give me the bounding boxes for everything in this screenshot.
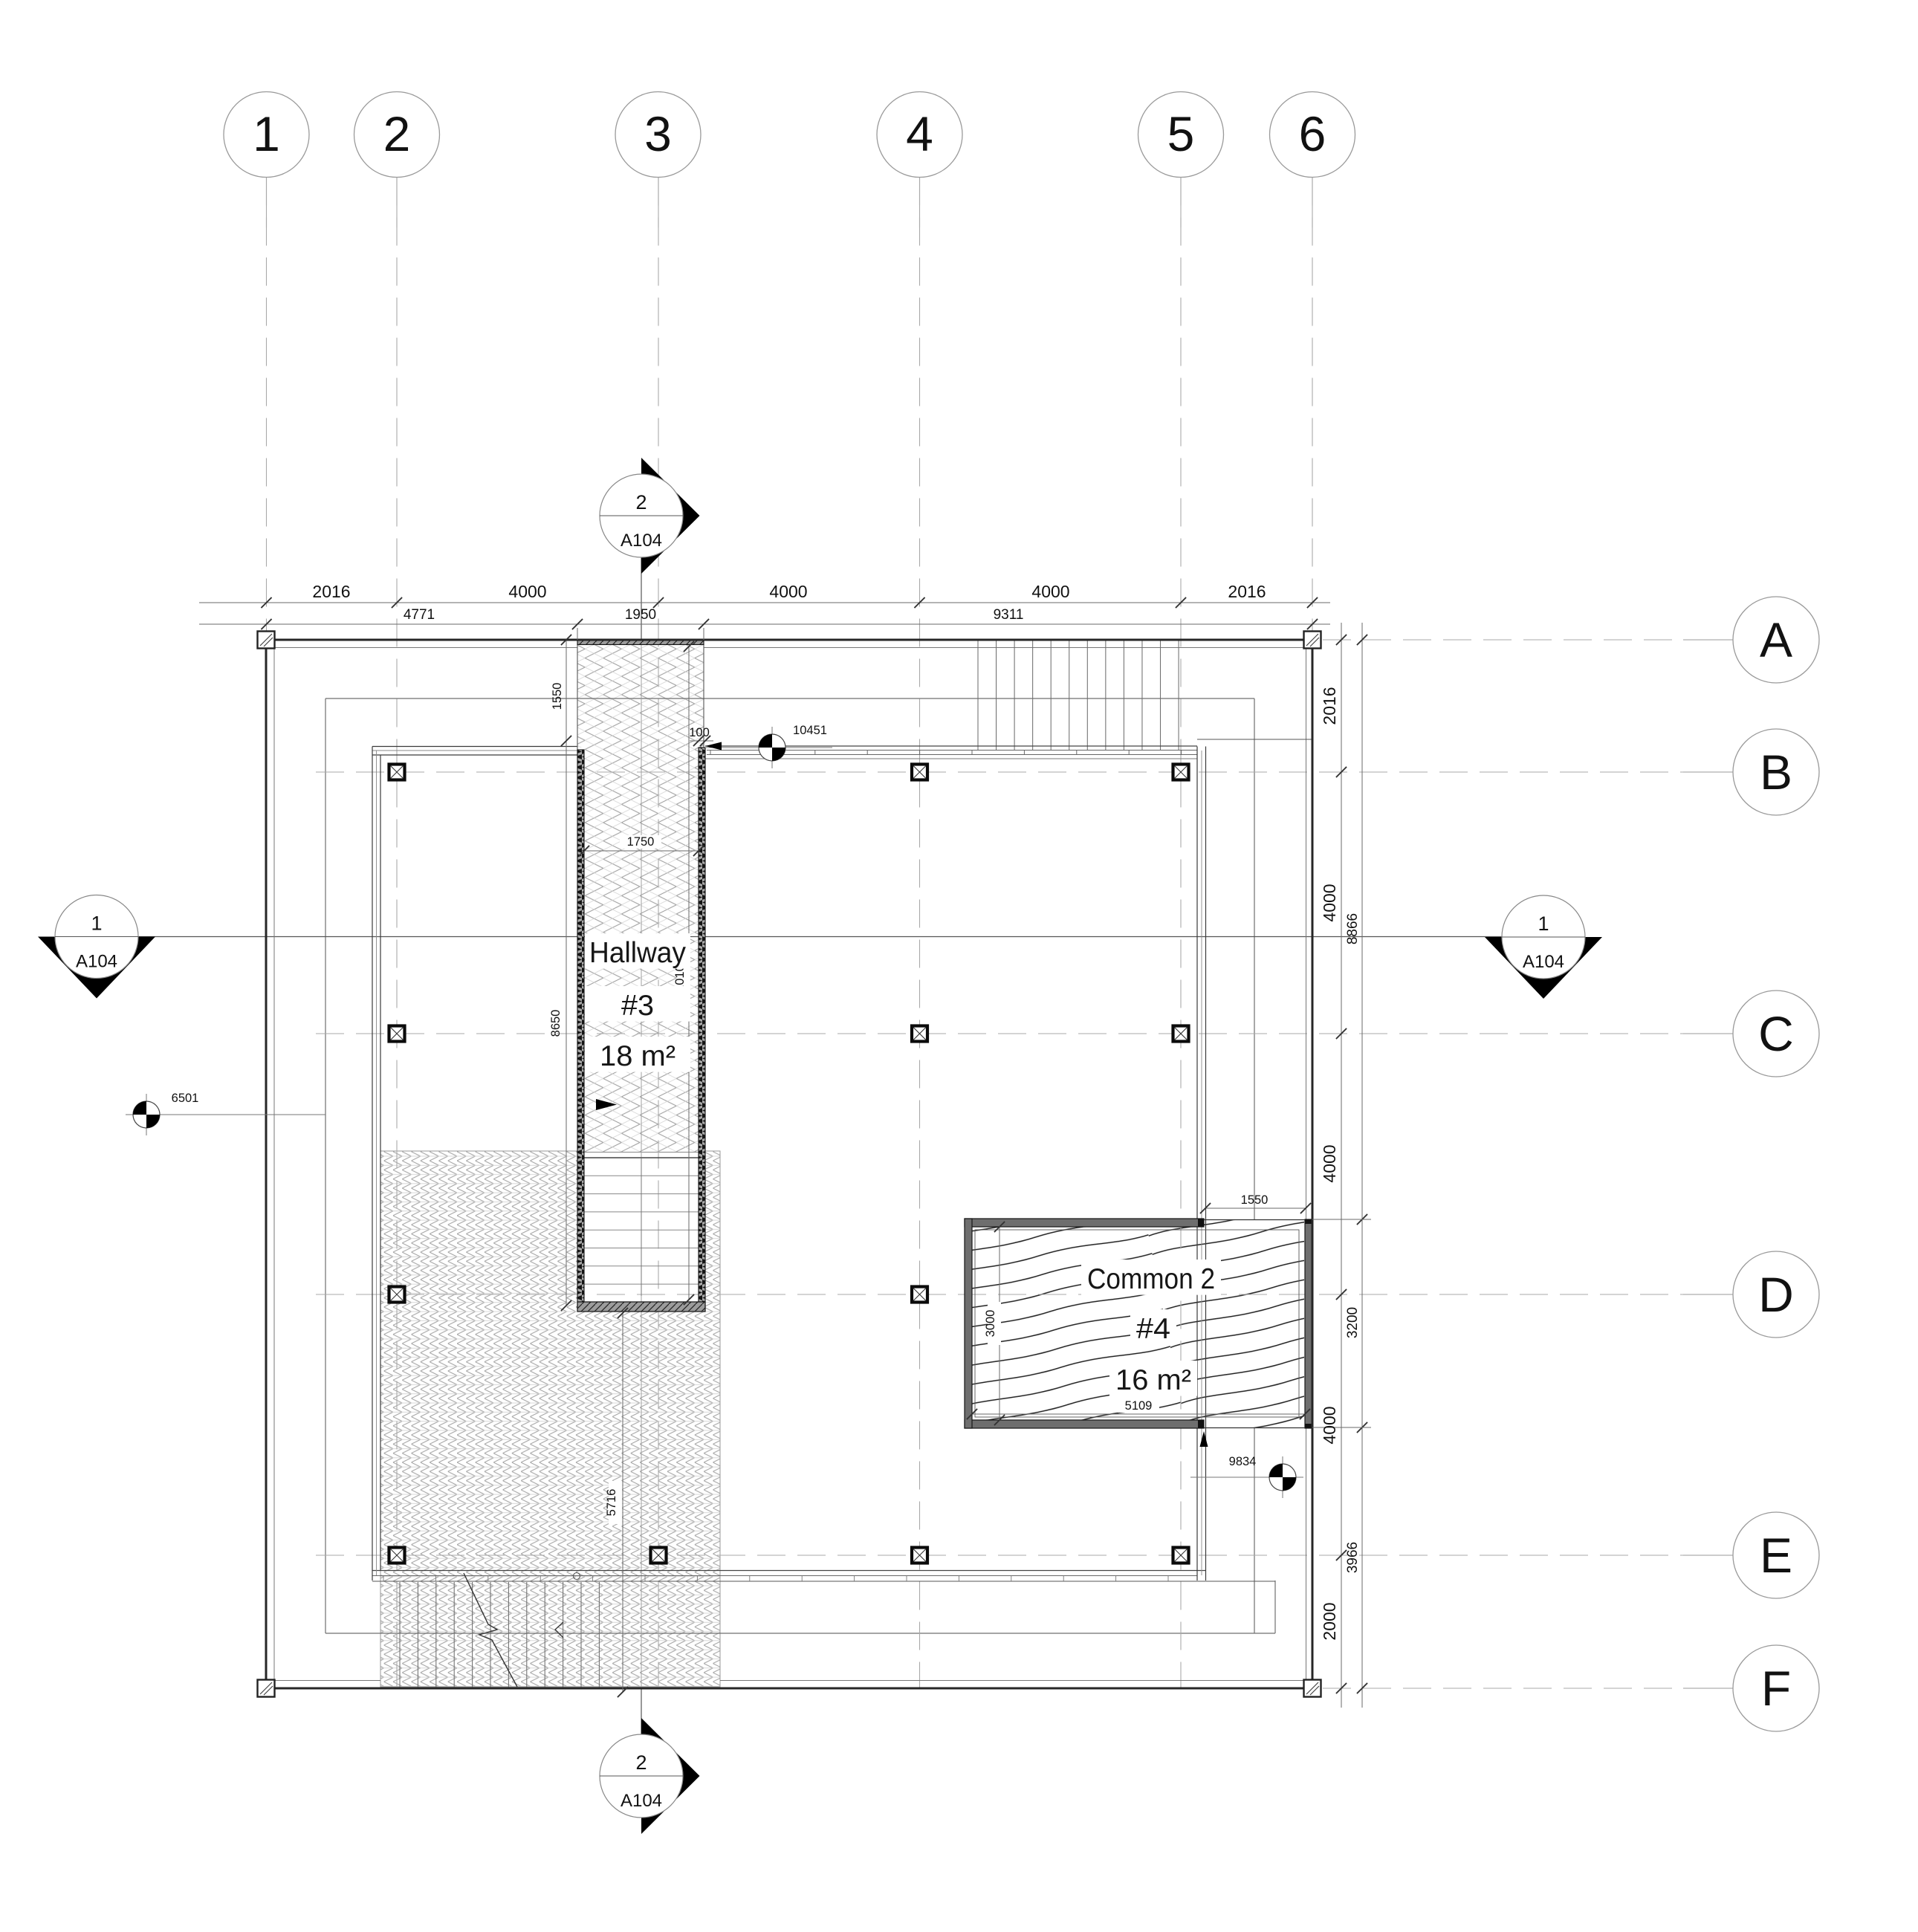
svg-text:2000: 2000 (1320, 1602, 1339, 1640)
svg-text:E: E (1760, 1528, 1792, 1583)
svg-text:4000: 4000 (1320, 1144, 1339, 1182)
svg-text:2016: 2016 (312, 582, 350, 601)
svg-text:2: 2 (635, 491, 647, 513)
svg-text:3000: 3000 (984, 1310, 997, 1338)
svg-text:A104: A104 (621, 1791, 662, 1811)
svg-text:4000: 4000 (1320, 1406, 1339, 1444)
svg-text:F: F (1761, 1661, 1791, 1716)
svg-text:A: A (1760, 612, 1792, 667)
svg-text:1: 1 (1538, 912, 1549, 935)
svg-text:2016: 2016 (1320, 687, 1339, 724)
svg-text:10451: 10451 (793, 724, 827, 737)
svg-text:1: 1 (253, 106, 280, 161)
svg-text:100: 100 (689, 726, 710, 739)
svg-text:4000: 4000 (508, 582, 546, 601)
svg-text:4: 4 (906, 106, 933, 161)
svg-text:4000: 4000 (1320, 884, 1339, 921)
svg-text:#4: #4 (1136, 1313, 1170, 1345)
svg-text:1750: 1750 (627, 835, 655, 849)
svg-text:Hallway: Hallway (589, 937, 686, 969)
svg-text:5109: 5109 (1125, 1399, 1153, 1413)
svg-text:C: C (1758, 1006, 1794, 1061)
svg-text:2016: 2016 (1228, 582, 1266, 601)
svg-text:6: 6 (1299, 106, 1326, 161)
svg-text:4771: 4771 (404, 607, 435, 623)
svg-text:2: 2 (383, 106, 411, 161)
svg-text:1950: 1950 (625, 607, 656, 623)
svg-text:8866: 8866 (1345, 913, 1361, 944)
svg-text:4000: 4000 (769, 582, 807, 601)
svg-text:1550: 1550 (1241, 1193, 1269, 1207)
svg-text:1550: 1550 (551, 683, 564, 710)
svg-text:B: B (1760, 745, 1792, 800)
svg-text:A104: A104 (1523, 952, 1564, 972)
svg-text:3966: 3966 (1345, 1542, 1361, 1573)
svg-text:9311: 9311 (994, 607, 1024, 623)
svg-text:16 m²: 16 m² (1115, 1364, 1191, 1396)
svg-text:4000: 4000 (1031, 582, 1069, 601)
svg-text:9834: 9834 (1229, 1455, 1257, 1468)
svg-text:5716: 5716 (605, 1489, 618, 1517)
svg-text:8650: 8650 (549, 1010, 563, 1037)
svg-text:18 m²: 18 m² (600, 1040, 675, 1072)
svg-text:2: 2 (635, 1751, 647, 1774)
svg-text:6501: 6501 (172, 1092, 199, 1105)
svg-text:#3: #3 (621, 990, 654, 1022)
svg-text:Common 2: Common 2 (1087, 1263, 1215, 1295)
svg-text:5: 5 (1167, 106, 1195, 161)
svg-text:A104: A104 (621, 531, 662, 551)
svg-text:3: 3 (644, 106, 672, 161)
svg-text:1: 1 (91, 912, 102, 935)
svg-text:D: D (1758, 1267, 1794, 1322)
svg-text:A104: A104 (76, 952, 117, 972)
svg-text:3200: 3200 (1345, 1307, 1361, 1338)
